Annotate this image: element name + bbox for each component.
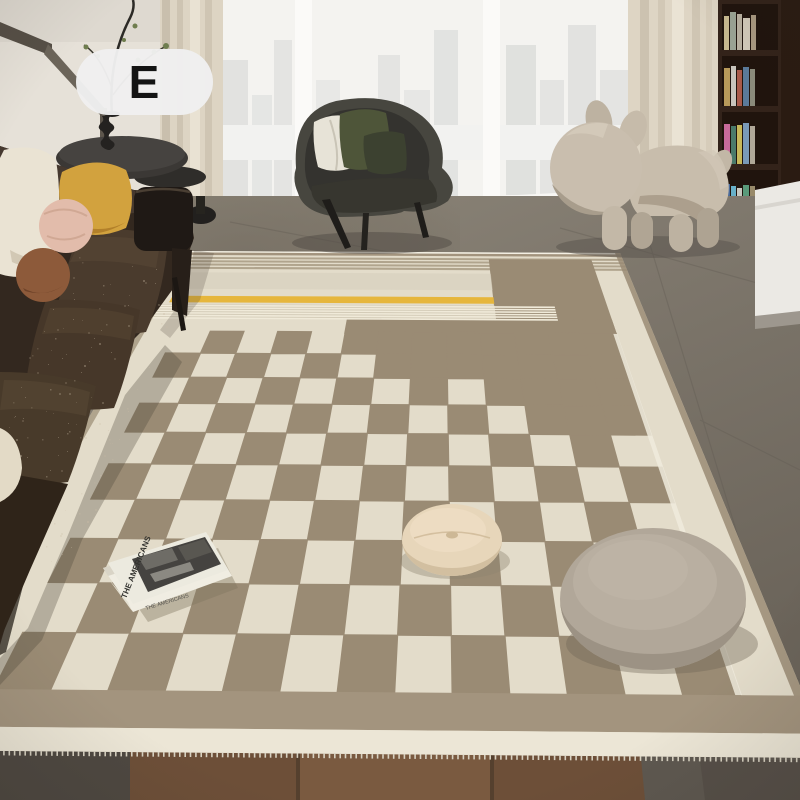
svg-text:E: E (129, 56, 160, 108)
